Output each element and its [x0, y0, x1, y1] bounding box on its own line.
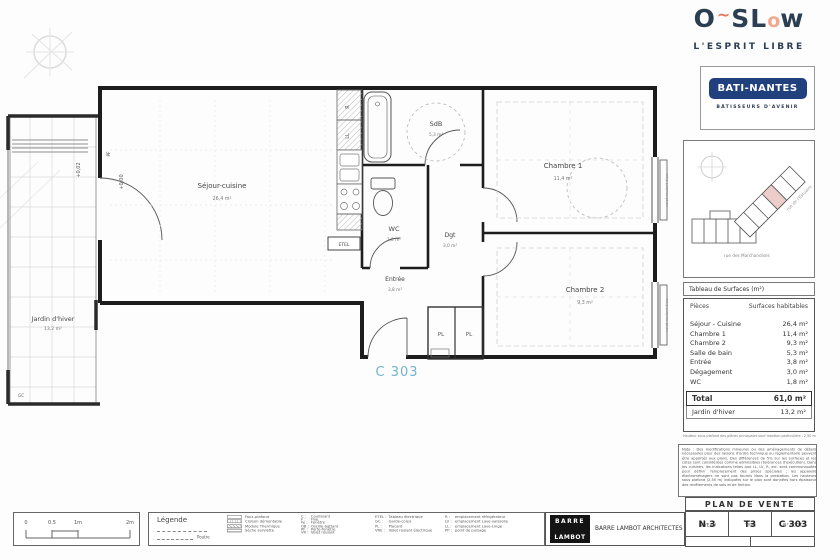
closet-label-2: PL: [466, 332, 473, 338]
builder-tagline: BÂTISSEURS D'AVENIR: [713, 104, 801, 109]
table-row: Dégagement3,0 m²: [684, 368, 814, 378]
legend-title: Légende: [157, 516, 187, 524]
door-chambre2: [483, 242, 517, 276]
surface-table-title: Tableau de Surfaces (m²): [689, 286, 764, 293]
dashed-guides: [110, 100, 643, 346]
fridge-label: R: [345, 105, 351, 109]
title-block-table: NIVEAU N 3 TYPE T3 N° LOGT C 303 Premièr…: [685, 511, 815, 547]
floor-plan: Jardin d'hiver 13,2 m² +0,02 GC volet ro…: [0, 70, 670, 510]
builder-logo-box: BATI-NANTES BÂTISSEURS D'AVENIR: [700, 66, 815, 130]
washer-label: LL: [345, 133, 351, 139]
plan-de-vente-sheet: { "colors": { "navy": "#2c3e52", "orange…: [0, 0, 840, 560]
door-entrance: [368, 318, 407, 357]
legend-abbr-equipment: ETEL :Tableau électrique GC :Garde-corps…: [375, 515, 432, 533]
tilde-icon: ~: [717, 5, 730, 24]
total-row: Total61,0 m²: [686, 391, 812, 406]
scale-bar-box: 0 0.5 1m 2m: [13, 512, 140, 546]
location-map: rue des Marchandises rue de l'Estuaire: [684, 141, 814, 277]
closet-label-1: PL: [438, 332, 445, 338]
toilet: [371, 178, 395, 216]
scale-tick: 0: [24, 520, 27, 526]
architect-logo: BARRE LAMBOT: [550, 515, 590, 543]
table-row: Entrée3,8 m²: [684, 358, 814, 368]
dashed-sample: [157, 531, 207, 532]
column-header-areas: Surfaces habitables: [749, 303, 808, 310]
room-label-jardin: Jardin d'hiver: [31, 315, 75, 323]
level-label-main: +0,00: [119, 174, 125, 189]
room-label-chambre1: Chambre 1: [544, 162, 583, 170]
room-label-chambre2: Chambre 2: [566, 286, 605, 294]
ceiling-height-note: Hauteur sous plafond des pièces principa…: [683, 434, 812, 438]
room-area-sejour: 26,4 m²: [213, 196, 232, 202]
jardin-dhiver-zone: Jardin d'hiver 13,2 m² +0,02 GC: [8, 116, 100, 404]
room-label-sejour: Séjour-cuisine: [198, 182, 247, 190]
beam-label: Poutre: [197, 535, 210, 540]
room-area-wc: 1,8 m²: [387, 237, 401, 243]
gc-label: GC: [18, 393, 24, 398]
room-area-jardin: 13,2 m²: [44, 326, 62, 332]
seche-serviette-symbol: [227, 529, 242, 533]
room-label-entree: Entrée: [385, 276, 405, 283]
scale-tick: 0.5: [48, 520, 56, 526]
dashed-sample-beam: [157, 539, 193, 540]
legend-symbols-column: Faux-plafond Cloison démontable Module T…: [227, 515, 282, 533]
oslow-logo: O~SLow: [683, 4, 815, 33]
scale-tick: 1m: [74, 520, 82, 526]
update-date: mise à jour : 25/07/2018: [751, 537, 815, 546]
closets: PL PL: [428, 307, 483, 359]
table-row: Séjour - Cuisine26,4 m²: [684, 320, 814, 330]
room-area-sdb: 5,3 m²: [429, 132, 443, 138]
architect-box: BARRE LAMBOT BARRE LAMBOT ARCHITECTES: [545, 512, 685, 546]
logo-letter-w: w: [780, 4, 804, 33]
room-label-wc: WC: [389, 225, 400, 233]
architect-name: BARRE LAMBOT ARCHITECTES: [595, 526, 683, 532]
room-label-dgt: Dgt: [445, 232, 456, 239]
plan-de-vente-heading: PLAN DE VENTE: [685, 497, 815, 511]
kitchen-sink: [337, 150, 362, 184]
glazing-hatch: [12, 140, 88, 152]
room-label-sdb: SdB: [430, 120, 443, 128]
door-chambre1: [483, 188, 517, 222]
table-row: Chambre 111,4 m²: [684, 330, 814, 340]
nota-box: Nota : Des modifications mineures ou des…: [678, 444, 817, 497]
kitchen-hob: [337, 184, 362, 214]
module-thermique-symbol: [227, 524, 242, 528]
kitchen-strip: R LL ETEL: [328, 90, 362, 250]
logo-letters: SL: [731, 4, 767, 33]
room-area-chambre2: 9,3 m²: [577, 300, 593, 306]
type-cell: TYPE T3: [729, 512, 772, 536]
shutter-label-1: volet roulant élec.: [664, 173, 669, 207]
scale-tick: 2m: [126, 520, 134, 526]
shutter-label-2: volet roulant élec.: [664, 298, 669, 332]
etel-label: ETEL: [339, 242, 350, 248]
table-row: Chambre 29,3 m²: [684, 339, 814, 349]
door-jardin: [100, 178, 162, 240]
surface-table-title-box: Tableau de Surfaces (m²): [683, 282, 815, 296]
room-area-chambre1: 11,4 m²: [554, 176, 573, 182]
room-area-entree: 3,8 m²: [388, 287, 402, 293]
column-header-rooms: Pièces: [690, 303, 709, 310]
logt-cell: N° LOGT C 303: [772, 512, 814, 536]
annex-row: Jardin d'hiver13,2 m²: [686, 406, 812, 419]
bati-nantes-logo: BATI-NANTES: [709, 78, 807, 99]
niveau-cell: NIVEAU N 3: [686, 512, 729, 536]
brand-tagline: L'ESPRIT LIBRE: [683, 42, 815, 52]
table-row: Salle de bain5,3 m²: [684, 349, 814, 359]
logo-letter: O: [694, 4, 716, 33]
scale-bar: 0 0.5 1m 2m: [14, 513, 139, 545]
exterior-walls: [100, 86, 657, 359]
logo-letter-o: o: [767, 10, 780, 32]
room-area-dgt: 3,0 m²: [443, 243, 457, 249]
nota-text: Nota : Des modifications mineures ou des…: [679, 445, 817, 489]
edition-date: Première édition : 04/04/2018: [686, 537, 751, 546]
unit-number-label: C 303: [375, 365, 418, 380]
legend-abbr-appliances: R :emplacement réfrigérateur LV :emplace…: [445, 515, 508, 533]
table-row: WC1,8 m²: [684, 378, 814, 388]
cloison-symbol: [227, 520, 242, 524]
surface-table: Pièces Surfaces habitables Séjour - Cuis…: [683, 298, 815, 432]
legend-abbr-openings: C :Coulissant F :Fixe Fe :Fenêtre OB :Os…: [301, 515, 338, 534]
location-map-box: rue des Marchandises rue de l'Estuaire: [683, 140, 815, 278]
room-labels: Séjour-cuisine 26,4 m² SdB 5,3 m² WC 1,8…: [198, 120, 605, 306]
level-label-jardin: +0,02: [76, 162, 82, 177]
faux-plafond-symbol: [227, 515, 242, 519]
bathtub: [364, 92, 391, 162]
pf-label: PF: [106, 151, 112, 157]
legend-box: Légende Poutre Faux-plafond Cloison démo…: [148, 512, 545, 546]
street-label-main: rue des Marchandises: [724, 253, 770, 258]
